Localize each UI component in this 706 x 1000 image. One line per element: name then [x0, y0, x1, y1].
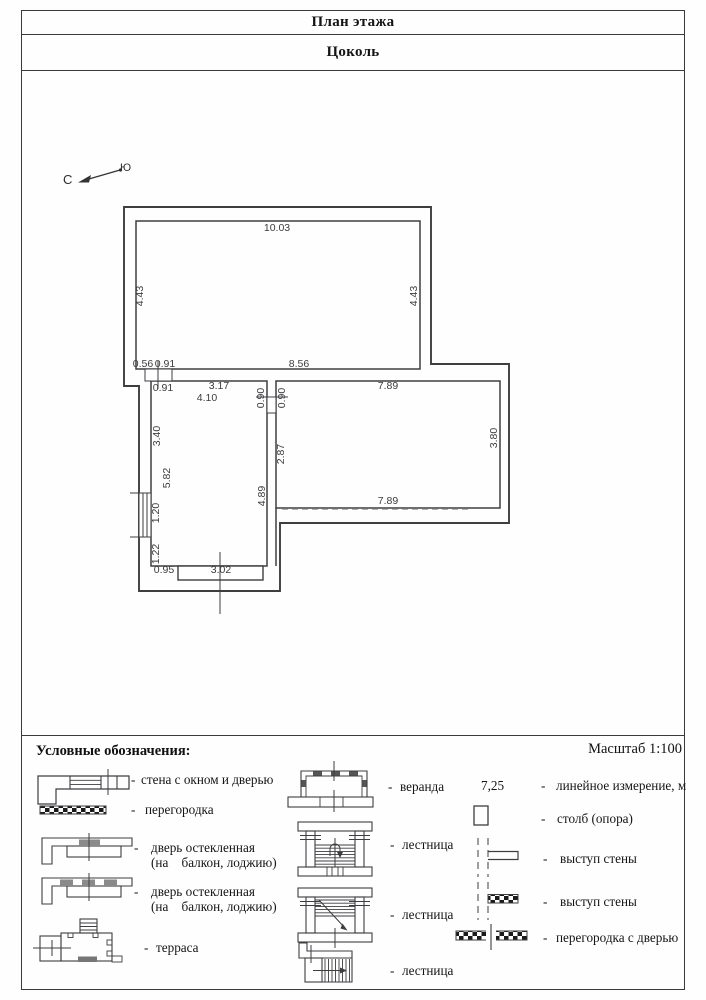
entry-porch: [178, 552, 263, 614]
terrace-icon: [33, 919, 122, 962]
legend-dash: -: [390, 907, 394, 923]
legend-dash: -: [131, 802, 135, 818]
legend-label-glazed-door-1: дверь остекленная: [151, 840, 255, 856]
stairs-uturn-icon: [298, 822, 372, 876]
dim-seg-317: 3.17: [209, 380, 229, 392]
legend-dash: -: [388, 779, 392, 795]
legend-label-wall-projection-2: выступ стены: [560, 894, 637, 910]
dim-room3-top: 7.89: [378, 380, 398, 392]
floor-plan-drawing: [124, 207, 509, 614]
legend-dash: -: [134, 884, 138, 900]
legend-label-post: столб (опора): [557, 811, 633, 827]
dim-room1-left: 4.43: [134, 286, 146, 306]
dim-door-top: 0.91: [155, 358, 175, 370]
dim-off-left: 0.56: [133, 358, 153, 370]
compass-south-label: Ю: [120, 162, 131, 174]
dim-seg-340: 3.40: [151, 426, 163, 446]
glazed-door-icon-1: [42, 833, 132, 864]
dim-off-bottom: 0.95: [154, 564, 174, 576]
dim-part-door-r: 0.90: [276, 388, 288, 408]
page: План этажа Цоколь: [0, 0, 706, 1000]
dim-seg-122: 1.22: [150, 544, 162, 564]
dim-room2-height: 5.82: [161, 468, 173, 488]
legend-label-linear-measure: линейное измерение, м: [556, 778, 686, 794]
wall-projection-icon-2: [478, 882, 518, 920]
legend-dash: -: [390, 837, 394, 853]
wall-projection-icon-1: [478, 838, 518, 877]
legend-label-stairs-2: лестница: [402, 907, 453, 923]
dim-room2-width: 4.10: [197, 392, 217, 404]
legend-dash: -: [134, 840, 138, 856]
window-left-wall: [130, 493, 151, 537]
compass-arrow: [78, 168, 122, 182]
dim-top-width: 10.03: [264, 222, 290, 234]
dim-window: 1.20: [150, 503, 162, 523]
legend-title: Условные обозначения:: [36, 743, 191, 760]
legend-label-terrace: терраса: [156, 940, 199, 956]
legend-value-linear-measure: 7,25: [481, 778, 504, 794]
wall-window-door-icon: [38, 769, 129, 804]
legend-label-wall-projection-1: выступ стены: [560, 851, 637, 867]
legend-dash: -: [543, 851, 547, 867]
legend-icons: [33, 761, 527, 982]
dim-porch-width: 3.02: [211, 564, 231, 576]
legend-dash: -: [541, 778, 545, 794]
legend-dash: -: [390, 963, 394, 979]
legend-label-glazed-door-2: дверь остекленная: [151, 884, 255, 900]
legend-label-stairs-3: лестница: [402, 963, 453, 979]
dim-door-top2: 0.91: [153, 382, 173, 394]
legend-dash: -: [131, 772, 135, 788]
legend-label-veranda: веранда: [400, 779, 444, 795]
dim-seg-489: 4.89: [256, 486, 268, 506]
dim-room3-bottom: 7.89: [378, 495, 398, 507]
stairs-run-icon: [299, 943, 352, 982]
glazed-door-icon-2: [42, 873, 132, 904]
outer-wall: [124, 207, 509, 591]
post-icon: [474, 806, 488, 825]
legend-label-wall-window-door: стена с окном и дверью: [141, 772, 273, 788]
room-top: [136, 221, 420, 369]
stairs-straight-icon: [298, 888, 372, 948]
partition-icon: [40, 806, 106, 814]
legend-label-stairs-1: лестница: [402, 837, 453, 853]
drawing-overlay: [0, 0, 706, 1000]
veranda-icon: [288, 761, 373, 812]
scale-label: Масштаб 1:100: [588, 741, 682, 758]
dim-room3-right: 3.80: [488, 428, 500, 448]
room-right: [276, 381, 500, 508]
dim-seg-287: 2.87: [275, 444, 287, 464]
legend-label-partition: перегородка: [145, 802, 214, 818]
dim-wall-bottom: 8.56: [289, 358, 309, 370]
compass-north-label: С: [63, 172, 72, 187]
legend-dash: -: [543, 930, 547, 946]
legend-dash: -: [541, 811, 545, 827]
legend-label-partition-with-door: перегородка с дверью: [556, 930, 678, 946]
legend-dash: -: [543, 894, 547, 910]
legend-label-glazed-door-1b: (на балкон, лоджию): [151, 855, 277, 871]
legend-dash: -: [144, 940, 148, 956]
legend-label-glazed-door-2b: (на балкон, лоджию): [151, 899, 277, 915]
dim-part-door-l: 0.90: [255, 388, 267, 408]
dim-room1-right: 4.43: [408, 286, 420, 306]
partition-with-door-icon: [456, 924, 527, 950]
